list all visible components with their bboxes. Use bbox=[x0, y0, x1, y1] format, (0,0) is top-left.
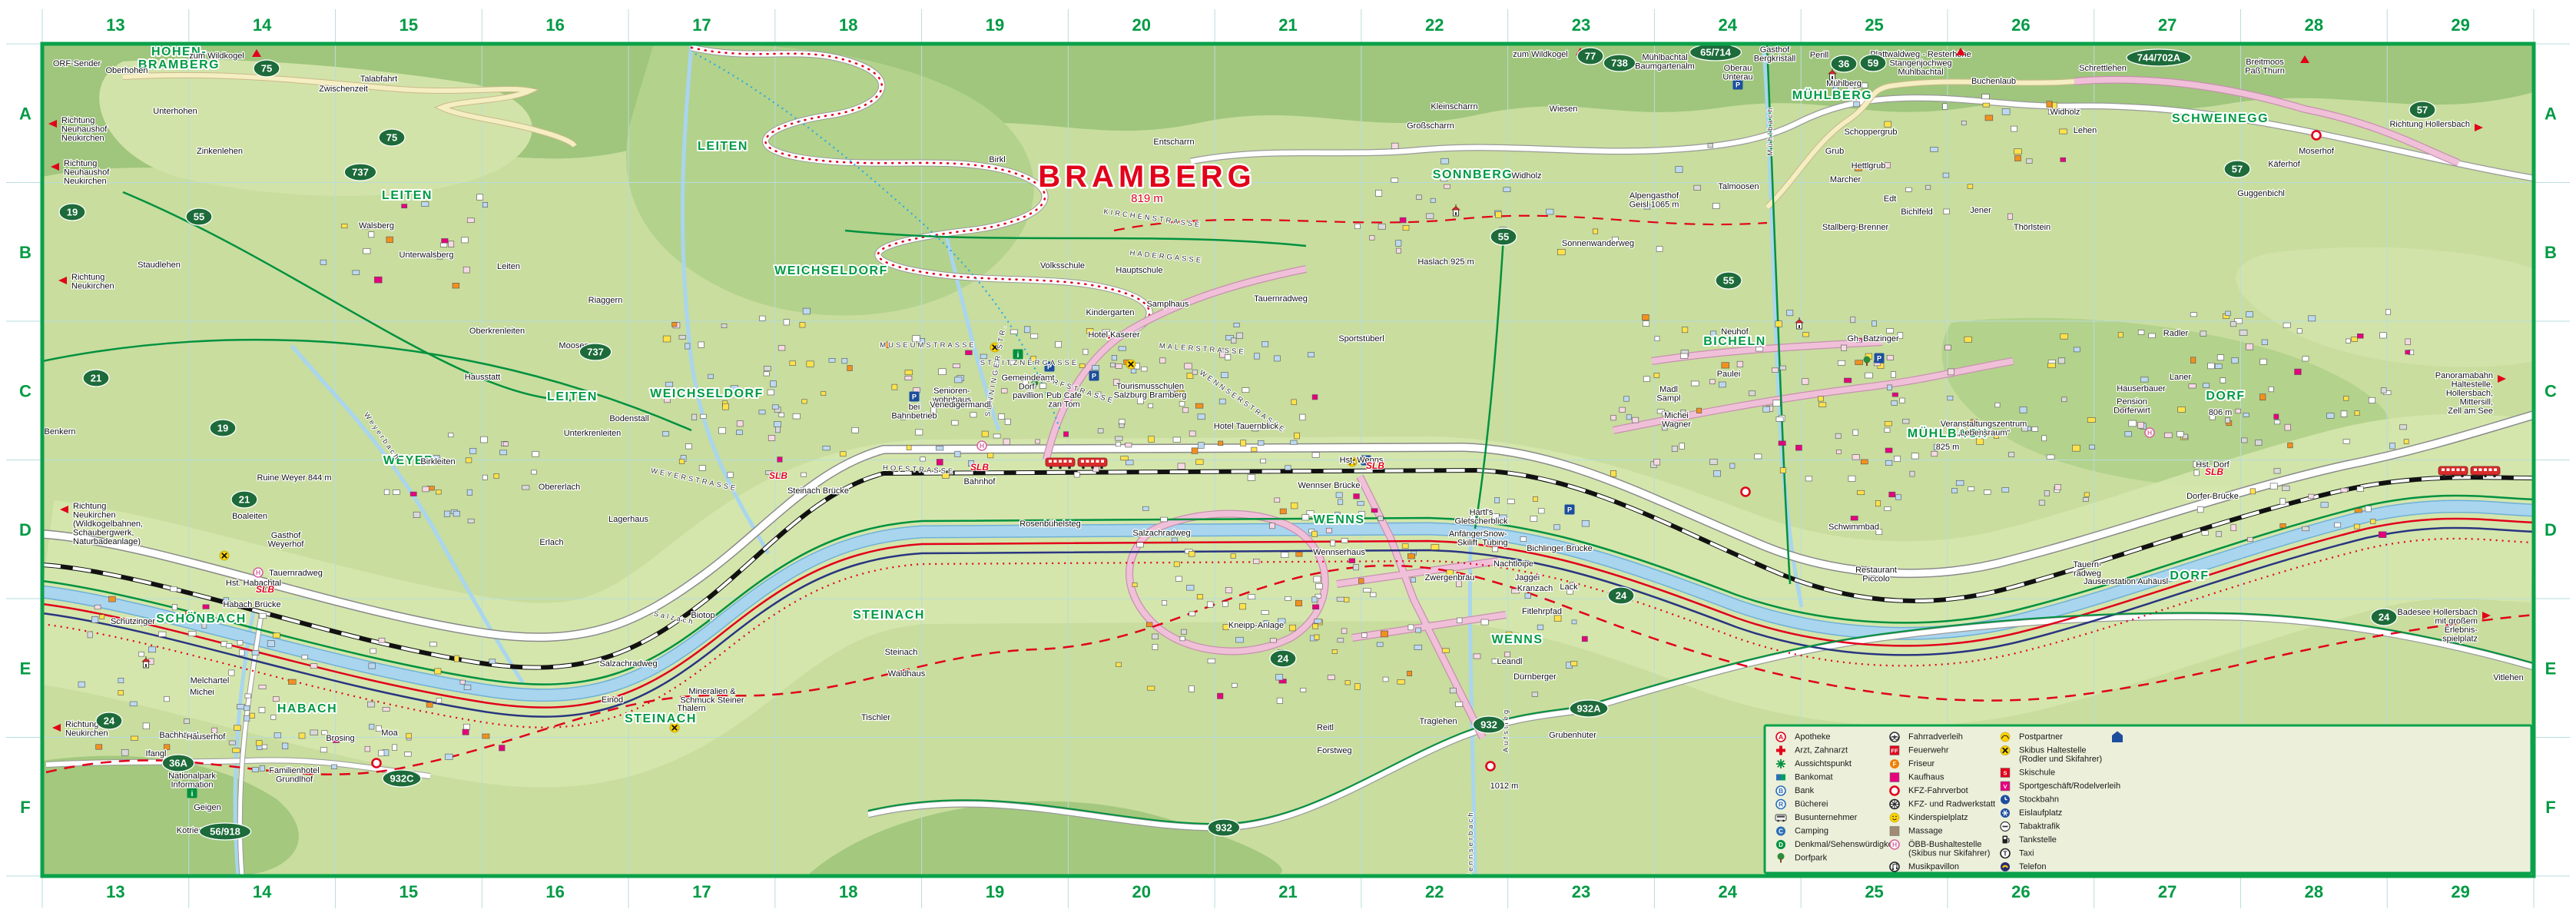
building bbox=[342, 224, 347, 227]
place-label: Moa bbox=[381, 728, 398, 738]
building bbox=[970, 413, 976, 417]
building bbox=[480, 436, 487, 443]
building bbox=[100, 615, 104, 619]
building bbox=[759, 410, 765, 414]
building bbox=[2297, 329, 2302, 334]
place-label: Wennserhaus bbox=[1313, 548, 1365, 557]
building bbox=[1680, 353, 1688, 358]
building bbox=[1236, 333, 1242, 339]
building bbox=[1772, 368, 1778, 373]
building bbox=[803, 308, 810, 314]
grid-row-label: C bbox=[2545, 381, 2557, 400]
building bbox=[1572, 620, 1576, 624]
region-label: BICHELN bbox=[1703, 335, 1766, 348]
place-label: Bodenstall bbox=[609, 414, 648, 423]
building bbox=[1654, 459, 1660, 465]
map-label: A bbox=[1779, 733, 1783, 741]
building bbox=[1875, 500, 1880, 506]
legend-label: Busunternehmer bbox=[1795, 813, 1858, 822]
building bbox=[1691, 381, 1699, 386]
grid-col-label: 21 bbox=[1278, 882, 1297, 901]
building bbox=[2341, 488, 2348, 492]
building bbox=[1885, 428, 1890, 433]
building bbox=[2346, 339, 2350, 343]
building bbox=[1131, 369, 1136, 373]
place-label: Fitlehrpfad bbox=[1522, 607, 1562, 616]
building bbox=[2260, 359, 2267, 364]
circH-icon: H bbox=[1890, 840, 1899, 849]
building bbox=[1258, 440, 1264, 445]
building bbox=[244, 715, 249, 721]
grid-col-label: 23 bbox=[1572, 15, 1590, 35]
place-label: Gh. Batzinger bbox=[1847, 334, 1899, 343]
route-badge: 932C bbox=[383, 770, 421, 787]
building bbox=[1945, 345, 1951, 350]
building bbox=[1363, 588, 1371, 592]
place-label: Hauserbauer bbox=[2117, 384, 2166, 393]
building bbox=[1377, 642, 1383, 646]
place-label: PensionDorferwirt bbox=[2114, 397, 2150, 416]
building bbox=[1189, 551, 1195, 556]
legend-item: Massage bbox=[1890, 827, 1943, 836]
building bbox=[1952, 488, 1958, 493]
legend-label: Tabaktrafik bbox=[2019, 822, 2060, 831]
grid-col-label: 20 bbox=[1132, 15, 1150, 35]
place-label: Unterwalsberg bbox=[399, 251, 454, 260]
place-label: Biotop bbox=[691, 611, 714, 620]
building bbox=[1092, 365, 1099, 370]
building bbox=[2140, 377, 2148, 382]
building bbox=[2243, 413, 2249, 417]
building bbox=[442, 238, 449, 243]
legend-label: Telefon bbox=[2019, 862, 2046, 871]
route-number: 24 bbox=[1278, 653, 1289, 665]
building bbox=[2389, 443, 2395, 450]
building bbox=[320, 748, 327, 752]
building bbox=[1338, 499, 1343, 505]
building bbox=[728, 473, 733, 478]
building bbox=[1311, 531, 1317, 536]
building bbox=[1983, 103, 1990, 107]
building bbox=[445, 754, 453, 759]
bramberg-town-map: PPPPPPPiiHHH HOHEN-BRAMBERGLEITENLEITENL… bbox=[0, 0, 2576, 916]
building bbox=[2039, 500, 2044, 505]
star-icon bbox=[1776, 759, 1785, 768]
building bbox=[1336, 493, 1342, 498]
place-label: Lagerhaus bbox=[608, 515, 648, 524]
grid-col-label: 13 bbox=[106, 882, 124, 901]
place-label: Mineralien &Schmuck Steiner bbox=[680, 687, 744, 705]
place-label: Grubenhüter bbox=[1549, 731, 1596, 740]
place-label: Talmoosen bbox=[1718, 182, 1759, 191]
place-label: Thalern bbox=[677, 704, 705, 713]
grid-col-label: 22 bbox=[1425, 15, 1444, 35]
building bbox=[2246, 343, 2253, 350]
h-icon: H bbox=[977, 441, 986, 450]
building bbox=[1248, 595, 1255, 599]
map-label: H bbox=[1892, 841, 1897, 848]
grid-col-label: 21 bbox=[1278, 15, 1297, 35]
building bbox=[1231, 554, 1235, 559]
building bbox=[672, 322, 677, 327]
building bbox=[665, 382, 672, 387]
legend-item: CCamping bbox=[1776, 827, 1828, 836]
route-number: 737 bbox=[352, 167, 369, 178]
p-icon: P bbox=[1089, 371, 1099, 381]
legend-item: SSkischule bbox=[2001, 768, 2055, 778]
building bbox=[463, 267, 469, 273]
building bbox=[1217, 693, 1222, 699]
building bbox=[131, 736, 138, 740]
building bbox=[2009, 453, 2014, 457]
building bbox=[1172, 538, 1177, 542]
place-label: Ruine Weyer 844 m bbox=[257, 473, 331, 483]
place-label: Michei bbox=[190, 688, 214, 697]
building bbox=[1381, 631, 1387, 637]
building bbox=[2236, 409, 2241, 413]
legend-label: Kinderspielplatz bbox=[1908, 813, 1968, 822]
place-label: ORF-Sender bbox=[53, 59, 101, 68]
route-number: 36A bbox=[169, 758, 187, 769]
building bbox=[1173, 437, 1181, 442]
route-badge: 21 bbox=[231, 491, 257, 508]
legend-box: AApothekeArzt, ZahnarztAussichtspunktBan… bbox=[1765, 725, 2531, 873]
legend-label: KFZ-Fahrverbot bbox=[1908, 786, 1968, 795]
legend-label: Skischule bbox=[2019, 768, 2055, 778]
building bbox=[429, 642, 436, 646]
building bbox=[1332, 649, 1338, 653]
place-label: Grub bbox=[1825, 147, 1844, 156]
place-label: Wiesen bbox=[1550, 105, 1578, 114]
legend-item: Kaufhaus bbox=[1890, 773, 1944, 782]
place-label: Benkern bbox=[45, 427, 76, 436]
building bbox=[499, 745, 505, 751]
building bbox=[2073, 445, 2080, 451]
building bbox=[1943, 173, 1949, 178]
building bbox=[1126, 443, 1132, 447]
route-badge: 59 bbox=[1860, 55, 1886, 71]
place-label: GasthofWeyerhof bbox=[268, 531, 305, 549]
building bbox=[1442, 649, 1449, 652]
region-label: LEITEN bbox=[547, 390, 598, 403]
building bbox=[1803, 333, 1809, 337]
p-icon: P bbox=[1875, 353, 1885, 363]
building bbox=[1300, 414, 1305, 420]
building bbox=[1234, 323, 1239, 327]
place-label: Ifangl bbox=[146, 749, 167, 758]
street-label: Wennserbach bbox=[1467, 810, 1475, 880]
building bbox=[1755, 454, 1762, 459]
place-label: Jausenstation Auhäusl bbox=[2084, 577, 2168, 586]
place-label: Riaggern bbox=[588, 296, 623, 305]
building bbox=[1116, 363, 1122, 368]
building bbox=[1872, 321, 1877, 327]
legend-label: Arzt, Zahnarzt bbox=[1795, 746, 1848, 755]
place-label: Thörlstein bbox=[2014, 223, 2051, 232]
sqTaupe-icon bbox=[1890, 827, 1899, 836]
building bbox=[1844, 378, 1851, 383]
building bbox=[1537, 625, 1543, 629]
building bbox=[980, 354, 986, 359]
building bbox=[1391, 178, 1398, 182]
place-label: Tischler bbox=[861, 713, 890, 722]
building bbox=[1182, 407, 1189, 412]
wheel-icon bbox=[1890, 800, 1899, 809]
building bbox=[1275, 498, 1280, 503]
building bbox=[2047, 363, 2055, 368]
building bbox=[679, 459, 685, 463]
building bbox=[259, 685, 266, 689]
building bbox=[1353, 565, 1358, 570]
building bbox=[94, 605, 101, 609]
region-label: SCHÖNBACH bbox=[156, 611, 247, 626]
route-number: 21 bbox=[91, 373, 101, 384]
route-number: 55 bbox=[1498, 231, 1509, 243]
building bbox=[1254, 353, 1259, 359]
building bbox=[1198, 414, 1205, 420]
building bbox=[1291, 503, 1298, 509]
legend-item: AApotheke bbox=[1776, 732, 1830, 742]
region-label: LEITEN bbox=[382, 189, 433, 202]
building bbox=[2177, 431, 2184, 436]
building bbox=[1005, 419, 1010, 424]
grid-row-label: D bbox=[2545, 520, 2557, 539]
building bbox=[1964, 337, 1971, 342]
building bbox=[369, 663, 376, 669]
route-number: 19 bbox=[217, 423, 228, 434]
region-label: LEITEN bbox=[698, 140, 748, 153]
building bbox=[2262, 340, 2268, 345]
place-label: Dürnberger bbox=[1513, 672, 1557, 682]
building bbox=[1643, 377, 1649, 382]
route-badge: 19 bbox=[210, 420, 236, 436]
region-label: DORF bbox=[2170, 569, 2209, 582]
legend-background bbox=[1765, 725, 2531, 873]
place-label: AlpengasthofGeisl 1065 m bbox=[1629, 191, 1679, 210]
building bbox=[2194, 470, 2199, 476]
building bbox=[2014, 155, 2021, 161]
building bbox=[310, 664, 317, 669]
building bbox=[2385, 310, 2390, 315]
building bbox=[1222, 602, 1228, 607]
bus-icon bbox=[1775, 815, 1786, 821]
place-label: OberauUnterau bbox=[1722, 64, 1752, 82]
building bbox=[1358, 501, 1364, 505]
building bbox=[1261, 611, 1268, 615]
grid-col-label: 14 bbox=[253, 15, 272, 35]
sqMag-icon bbox=[1890, 773, 1899, 782]
building bbox=[699, 466, 705, 471]
building bbox=[489, 659, 496, 664]
building bbox=[764, 372, 769, 376]
phone-icon bbox=[2001, 862, 2010, 871]
building bbox=[1865, 373, 1873, 378]
building bbox=[2047, 101, 2052, 108]
slb-stop-label: SLB bbox=[2205, 466, 2223, 477]
building bbox=[2327, 413, 2335, 419]
building bbox=[1474, 654, 1480, 659]
building bbox=[1408, 625, 1414, 630]
building bbox=[229, 741, 235, 745]
building bbox=[1520, 536, 1527, 541]
building bbox=[1240, 603, 1246, 609]
building bbox=[1313, 624, 1318, 629]
building bbox=[1110, 363, 1115, 367]
route-badge: 737 bbox=[344, 164, 376, 181]
legend-label: Bankomat bbox=[1795, 773, 1833, 782]
building bbox=[685, 343, 690, 349]
building bbox=[118, 690, 124, 695]
building bbox=[1780, 366, 1786, 370]
building bbox=[393, 745, 397, 751]
building bbox=[1886, 329, 1893, 334]
place-label: Kleinscharrn bbox=[1431, 102, 1477, 111]
circB-icon: B bbox=[1776, 786, 1785, 795]
building bbox=[2259, 394, 2266, 400]
legend-label: Taxi bbox=[2019, 849, 2034, 858]
legend-item: DDenkmal/Sehenswürdigkeit bbox=[1776, 840, 1897, 849]
building bbox=[384, 490, 390, 495]
legend-label: Postpartner bbox=[2019, 732, 2063, 742]
grid-col-label: 19 bbox=[986, 15, 1004, 35]
building bbox=[234, 725, 240, 730]
building bbox=[426, 702, 433, 707]
map-canvas: PPPPPPPiiHHH HOHEN-BRAMBERGLEITENLEITENL… bbox=[0, 0, 2576, 916]
building bbox=[777, 457, 782, 463]
route-number: 932C bbox=[390, 773, 414, 785]
building bbox=[955, 451, 960, 456]
building bbox=[2032, 426, 2038, 431]
legend-label: Sportgeschäft/Rodelverleih bbox=[2019, 782, 2120, 791]
building bbox=[1036, 440, 1040, 443]
building bbox=[708, 374, 714, 379]
place-label: Widholz bbox=[2050, 108, 2080, 117]
building bbox=[2274, 414, 2279, 419]
building bbox=[1503, 188, 1510, 192]
building bbox=[852, 427, 859, 433]
circR-icon: R bbox=[1776, 800, 1785, 809]
building bbox=[462, 237, 469, 243]
building bbox=[1187, 585, 1194, 590]
building bbox=[772, 405, 778, 409]
building bbox=[790, 361, 796, 366]
map-title-elevation: 819 m bbox=[1131, 192, 1163, 205]
grid-row-label: B bbox=[2545, 243, 2557, 262]
building bbox=[1331, 540, 1335, 546]
building bbox=[2026, 159, 2032, 164]
place-label: Vitlehen bbox=[2493, 673, 2524, 682]
building bbox=[771, 381, 777, 387]
building bbox=[467, 218, 474, 223]
building bbox=[1185, 363, 1192, 369]
place-label: Melchartel bbox=[191, 676, 230, 685]
building bbox=[466, 458, 472, 463]
building bbox=[118, 678, 124, 682]
place-label: Mühlberg bbox=[1826, 79, 1862, 88]
place-label: Oberkrenleiten bbox=[469, 327, 525, 336]
building bbox=[1910, 471, 1915, 476]
building bbox=[2002, 108, 2010, 114]
place-label: Schoppergrub bbox=[1844, 128, 1897, 137]
building bbox=[2226, 311, 2231, 316]
building bbox=[109, 596, 116, 602]
building bbox=[2084, 493, 2089, 496]
building bbox=[237, 705, 244, 709]
building bbox=[1126, 460, 1133, 465]
place-label: Bahnhof bbox=[964, 477, 996, 486]
place-label: MadlSampl bbox=[1656, 385, 1680, 403]
region-label: SCHWEINEGG bbox=[2172, 112, 2269, 125]
circD-icon: D bbox=[1776, 840, 1785, 849]
building bbox=[379, 638, 385, 642]
building bbox=[1402, 544, 1408, 549]
building bbox=[1236, 637, 1244, 642]
building bbox=[920, 457, 926, 461]
building bbox=[1187, 373, 1193, 378]
building bbox=[1719, 382, 1726, 387]
building bbox=[138, 652, 144, 656]
building bbox=[310, 730, 318, 735]
place-label: Kindergarten bbox=[1086, 308, 1135, 317]
grid-col-label: 22 bbox=[1425, 882, 1444, 901]
building bbox=[2247, 537, 2253, 541]
building bbox=[736, 430, 742, 435]
building bbox=[998, 414, 1004, 420]
building bbox=[164, 696, 170, 701]
route-number: 21 bbox=[239, 494, 250, 506]
building bbox=[406, 733, 412, 738]
building bbox=[829, 358, 835, 362]
map-title: BRAMBERG bbox=[1038, 160, 1256, 194]
building bbox=[2047, 455, 2054, 460]
building bbox=[1773, 400, 1780, 407]
building bbox=[2295, 369, 2302, 374]
grid-row-label: A bbox=[2545, 104, 2557, 123]
building bbox=[1855, 360, 1863, 365]
building bbox=[2242, 438, 2247, 443]
region-label: WENNS bbox=[1313, 513, 1364, 526]
building bbox=[171, 586, 177, 591]
building bbox=[370, 649, 376, 653]
place-label: Waldhaus bbox=[888, 669, 926, 679]
building bbox=[1314, 576, 1321, 582]
building bbox=[1341, 539, 1348, 543]
h-icon: H bbox=[254, 568, 263, 577]
place-label: Dorfer Brücke bbox=[2186, 492, 2239, 501]
grid-col-label: 15 bbox=[399, 15, 418, 35]
place-label: Hausstatt bbox=[465, 373, 500, 382]
place-label: Hauserhof bbox=[187, 732, 227, 742]
building bbox=[1431, 544, 1439, 549]
place-label: Leandl bbox=[1497, 657, 1522, 666]
building bbox=[1714, 470, 1721, 476]
building bbox=[892, 384, 897, 390]
building bbox=[1853, 430, 1858, 435]
place-label: Guggenbichl bbox=[2237, 189, 2285, 198]
building bbox=[1414, 645, 1422, 649]
circA-icon: A bbox=[1776, 732, 1785, 742]
building bbox=[1218, 441, 1222, 446]
building bbox=[767, 390, 774, 395]
building bbox=[1116, 662, 1122, 667]
place-label: Brosing bbox=[326, 734, 354, 743]
building bbox=[1338, 639, 1344, 642]
building bbox=[1496, 212, 1502, 218]
legend-label: Massage bbox=[1908, 827, 1943, 836]
building bbox=[2149, 334, 2156, 338]
place-label: Rosenbühelsteg bbox=[1019, 519, 1081, 529]
building bbox=[233, 748, 240, 752]
